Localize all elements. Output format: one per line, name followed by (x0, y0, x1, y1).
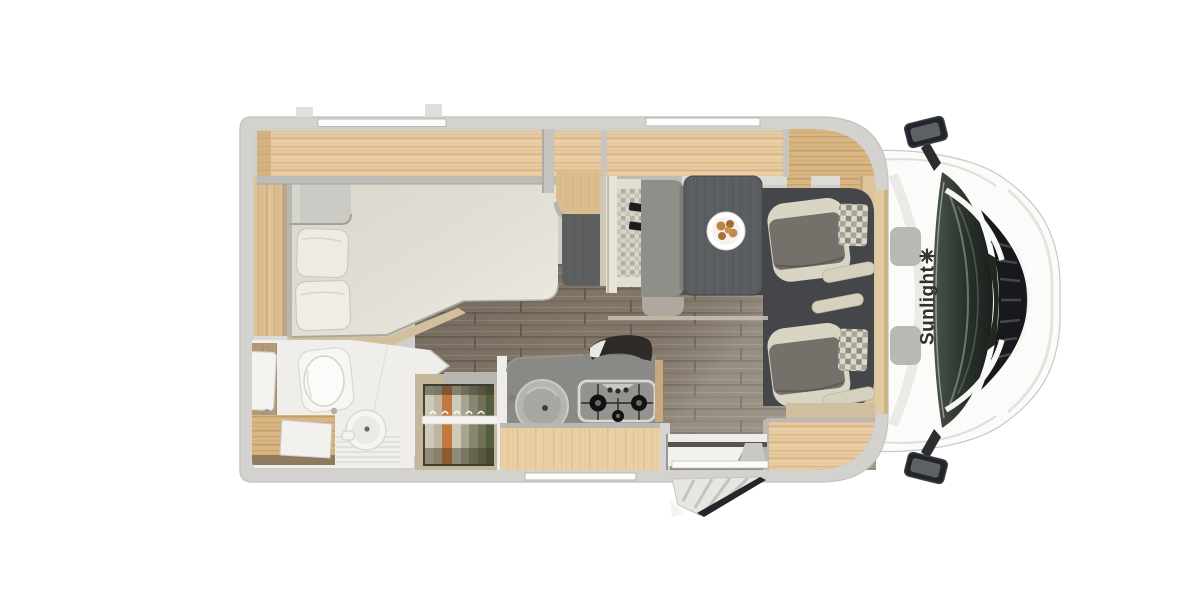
svg-text:Sunlight: Sunlight (918, 266, 939, 345)
